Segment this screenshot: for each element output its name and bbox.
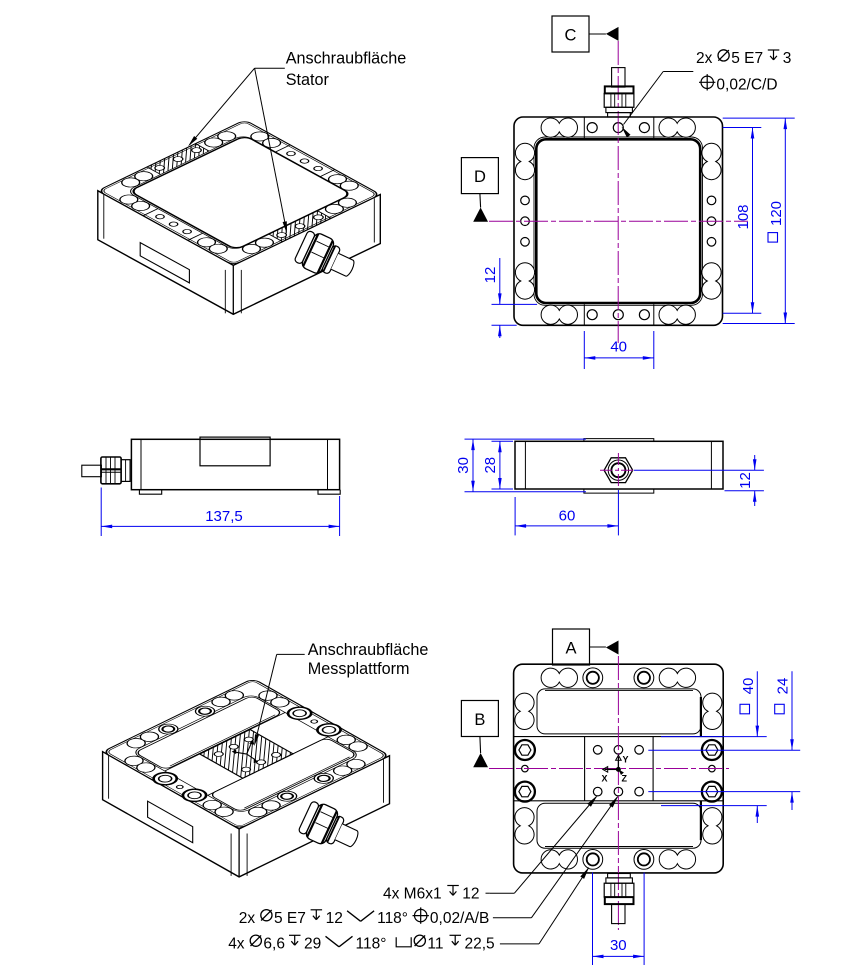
svg-text:Anschraubfläche: Anschraubfläche [308,641,429,659]
svg-text:22,5: 22,5 [465,935,495,952]
svg-text:4x M6x1: 4x M6x1 [383,886,442,903]
svg-text:Z: Z [622,774,628,784]
svg-text:30: 30 [610,937,627,954]
svg-text:5 E7: 5 E7 [731,50,763,67]
svg-text:108: 108 [735,204,752,229]
svg-text:12: 12 [326,910,343,927]
svg-text:24: 24 [775,678,792,695]
svg-text:5 E7: 5 E7 [274,910,306,927]
svg-text:120: 120 [768,201,785,226]
svg-text:60: 60 [559,508,576,525]
svg-text:2x: 2x [239,910,256,927]
svg-text:30: 30 [455,457,472,474]
svg-text:40: 40 [740,678,757,695]
svg-text:12: 12 [462,886,479,903]
svg-text:28: 28 [482,457,499,474]
svg-text:0,02/A/B: 0,02/A/B [430,910,489,927]
svg-text:0,02/C/D: 0,02/C/D [716,77,777,94]
svg-text:118°: 118° [356,935,387,952]
svg-text:3: 3 [783,50,792,67]
svg-text:X: X [602,774,608,784]
svg-text:40: 40 [610,339,627,356]
svg-text:2x: 2x [696,50,713,67]
svg-text:D: D [474,168,486,186]
svg-text:118°: 118° [377,910,408,927]
svg-text:29: 29 [304,935,321,952]
svg-text:Stator: Stator [286,71,330,89]
svg-text:11: 11 [427,935,443,952]
svg-text:12: 12 [482,267,499,284]
svg-text:4x: 4x [228,935,245,952]
svg-text:137,5: 137,5 [205,508,243,525]
svg-text:Y: Y [623,755,629,765]
svg-text:A: A [565,640,576,658]
svg-text:B: B [474,711,485,729]
svg-text:6,6: 6,6 [263,935,285,952]
svg-text:Anschraubfläche: Anschraubfläche [286,50,407,68]
svg-text:C: C [565,27,577,45]
svg-text:Messplattform: Messplattform [308,660,410,678]
svg-text:12: 12 [737,472,754,489]
